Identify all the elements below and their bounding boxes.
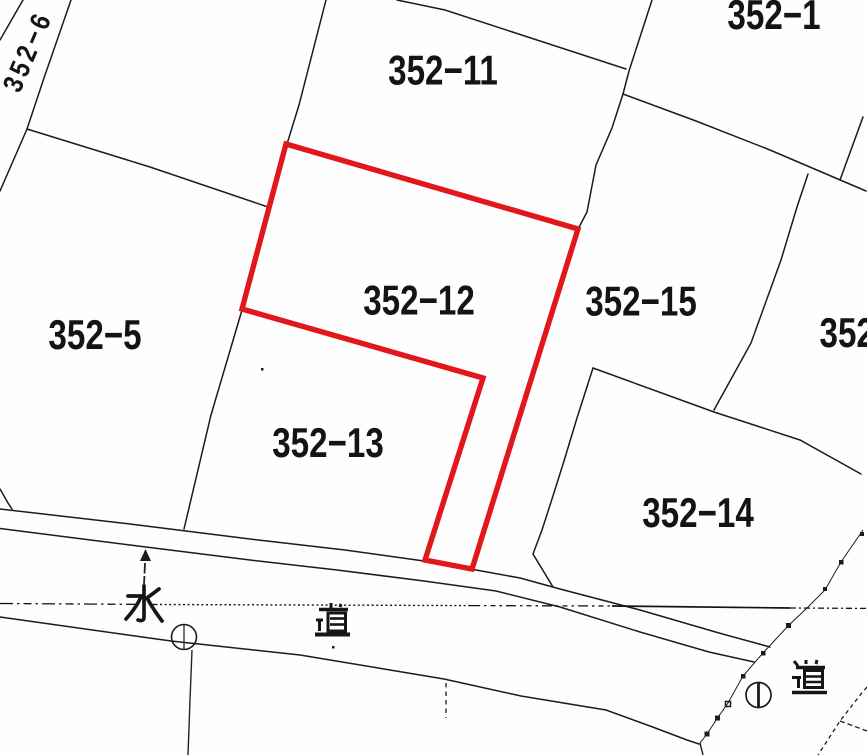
svg-text:352−5: 352−5: [48, 312, 141, 359]
svg-text:352−11: 352−11: [388, 48, 498, 95]
svg-text:352−13: 352−13: [272, 420, 384, 467]
svg-text:352−1: 352−1: [820, 310, 867, 357]
svg-text:352−15: 352−15: [585, 279, 697, 326]
svg-text:352−14: 352−14: [642, 490, 754, 537]
svg-text:352−1: 352−1: [727, 0, 820, 39]
svg-text:352−12: 352−12: [363, 278, 475, 325]
